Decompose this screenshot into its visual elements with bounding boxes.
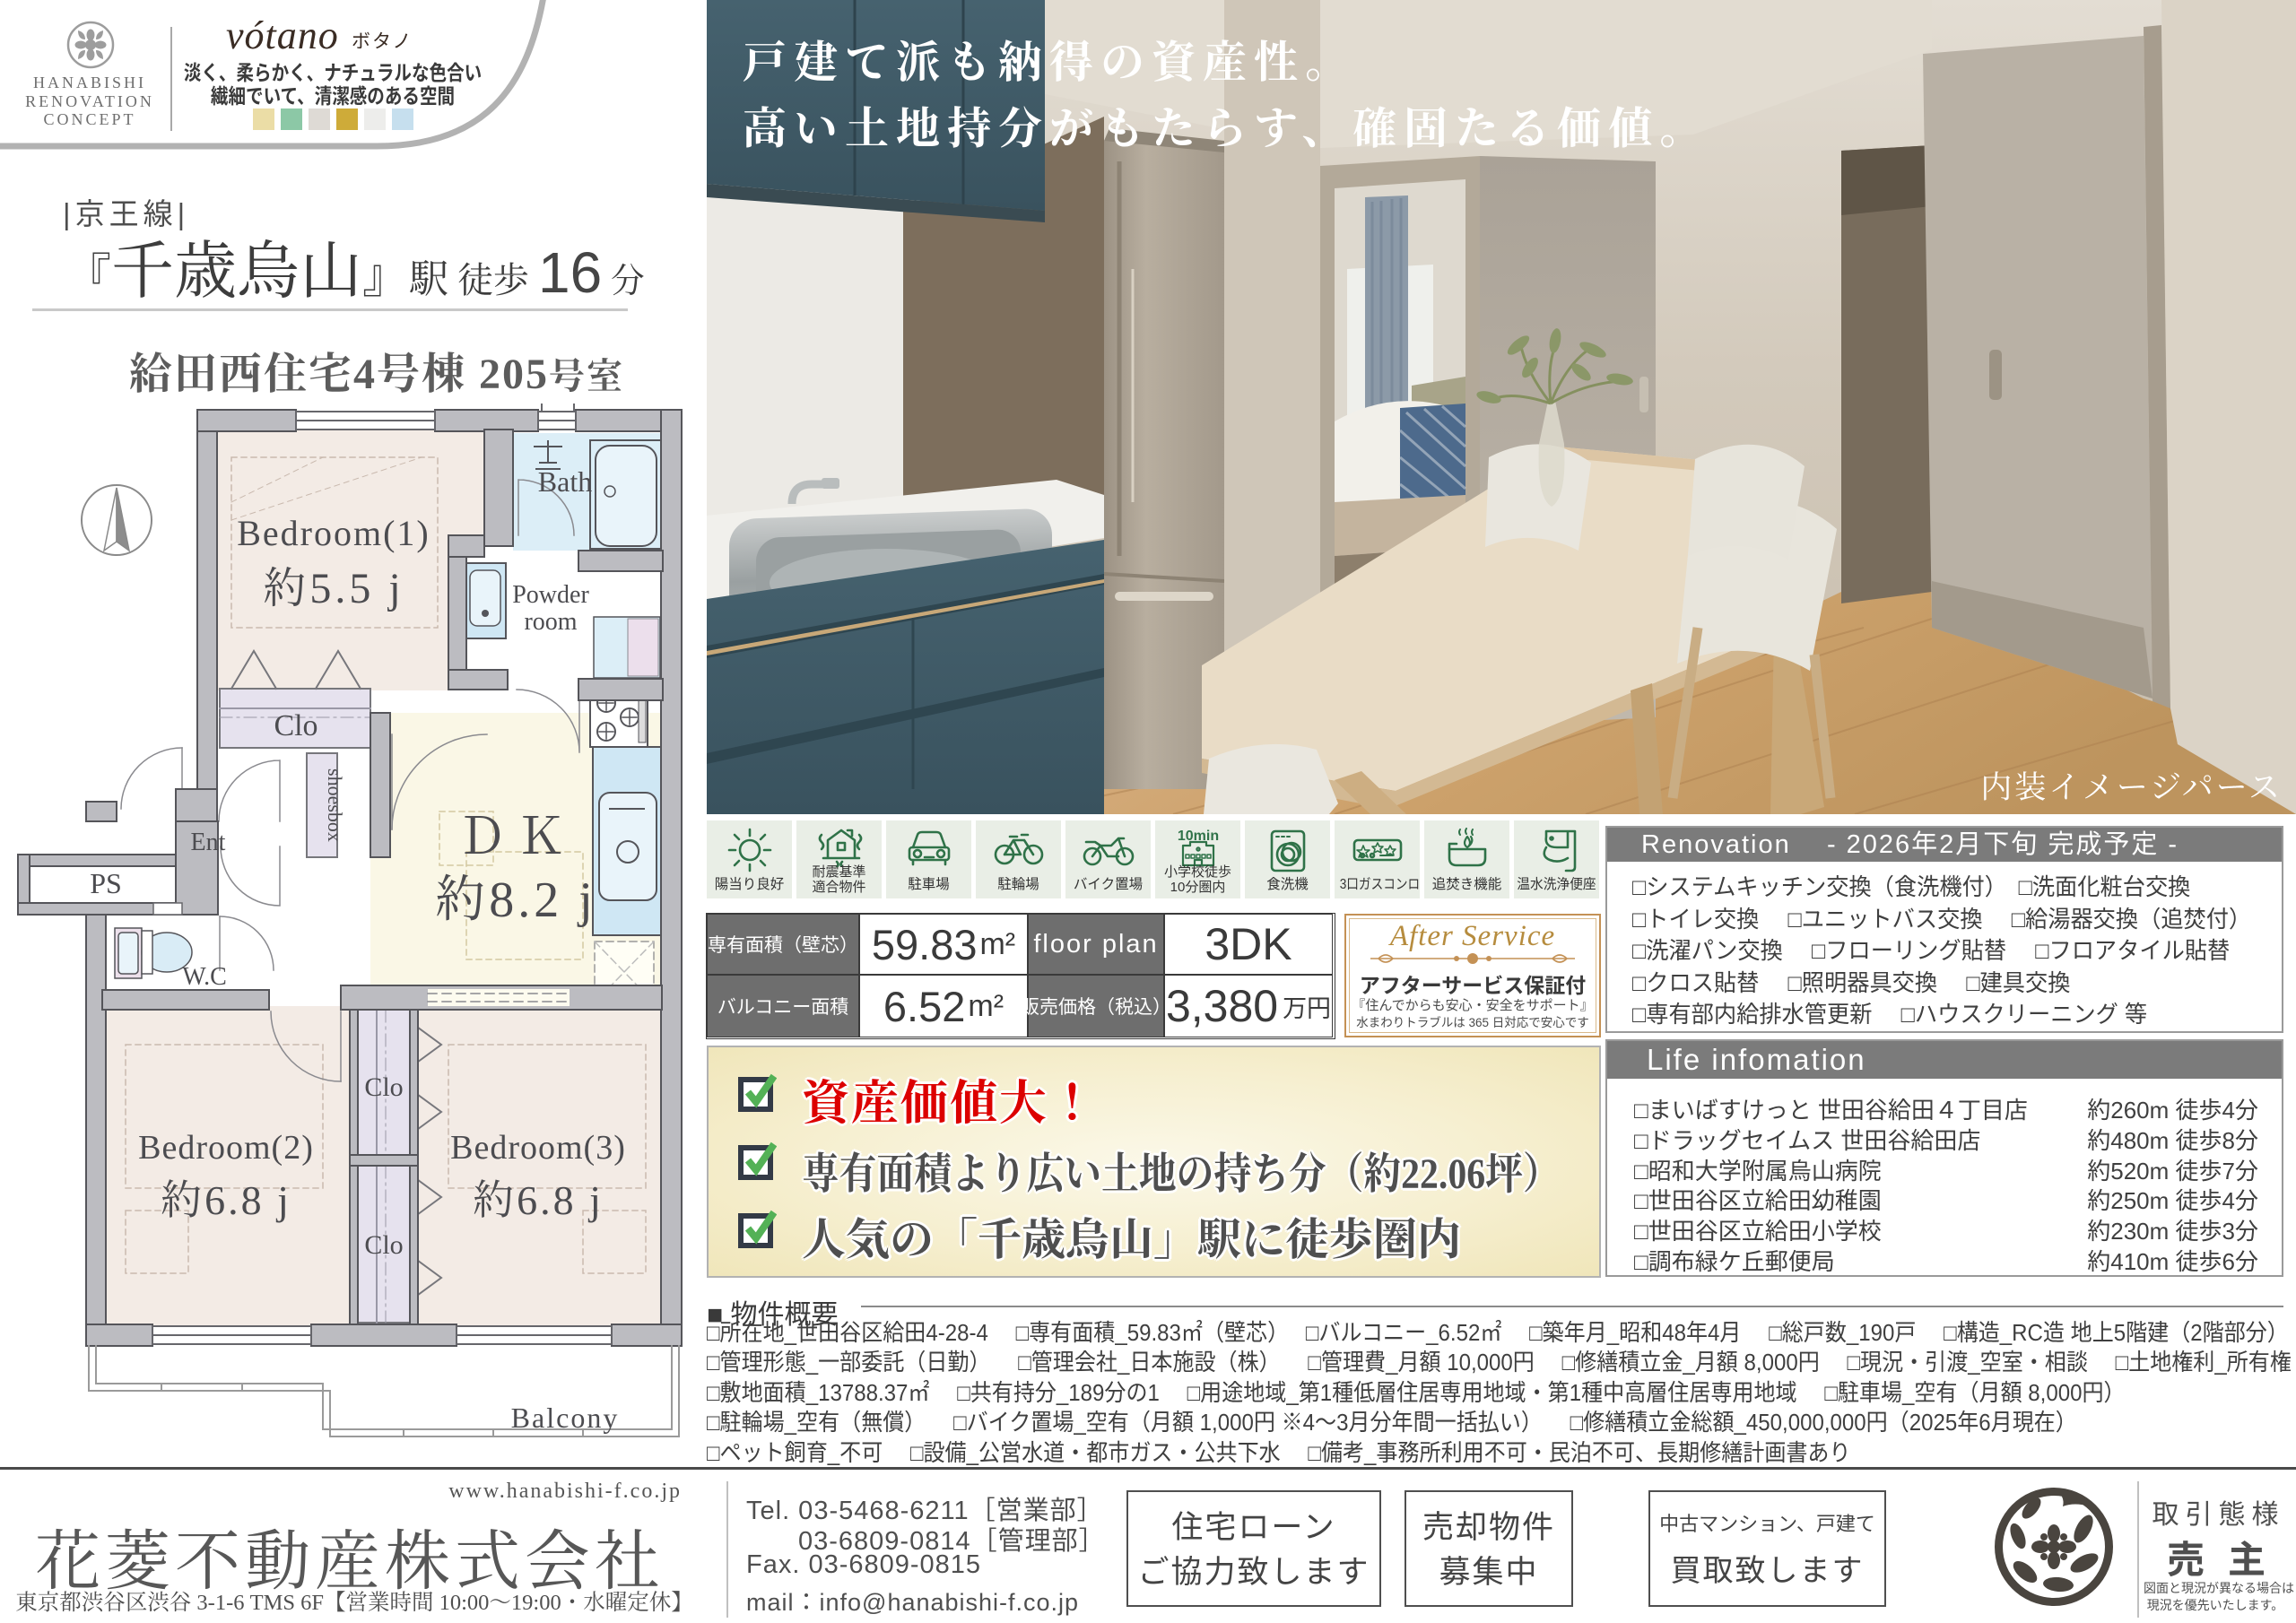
svg-text:内装イメージパース: 内装イメージパース [1980,770,2283,805]
svg-text:Powder: Powder [512,581,589,609]
svg-text:Clo: Clo [364,1072,403,1102]
svg-text:約5.5 j: 約5.5 j [263,565,404,612]
svg-text:約6.8 j: 約6.8 j [161,1177,291,1223]
svg-text:Clo: Clo [274,709,317,742]
svg-text:約6.8 j: 約6.8 j [473,1177,604,1223]
svg-text:Ent: Ent [191,829,226,856]
svg-text:shoesbox: shoesbox [324,768,346,842]
svg-text:Bath: Bath [538,465,592,498]
svg-text:Bedroom(1): Bedroom(1) [237,513,430,553]
svg-text:Clo: Clo [364,1230,403,1260]
svg-text:room: room [524,608,577,636]
svg-text:Balcony: Balcony [511,1402,620,1434]
svg-text:約8.2 j: 約8.2 j [435,872,596,928]
svg-text:戸建て派も納得の資産性。: 戸建て派も納得の資産性。 [743,38,1356,87]
svg-text:Bedroom(2): Bedroom(2) [138,1129,314,1167]
svg-text:高い土地持分がもたらす、確固たる価値。: 高い土地持分がもたらす、確固たる価値。 [743,104,1710,153]
svg-text:PS: PS [90,867,122,899]
svg-text:Bedroom(3): Bedroom(3) [450,1129,626,1167]
svg-text:ＤＫ: ＤＫ [457,810,575,865]
svg-text:W.C: W.C [182,963,227,991]
